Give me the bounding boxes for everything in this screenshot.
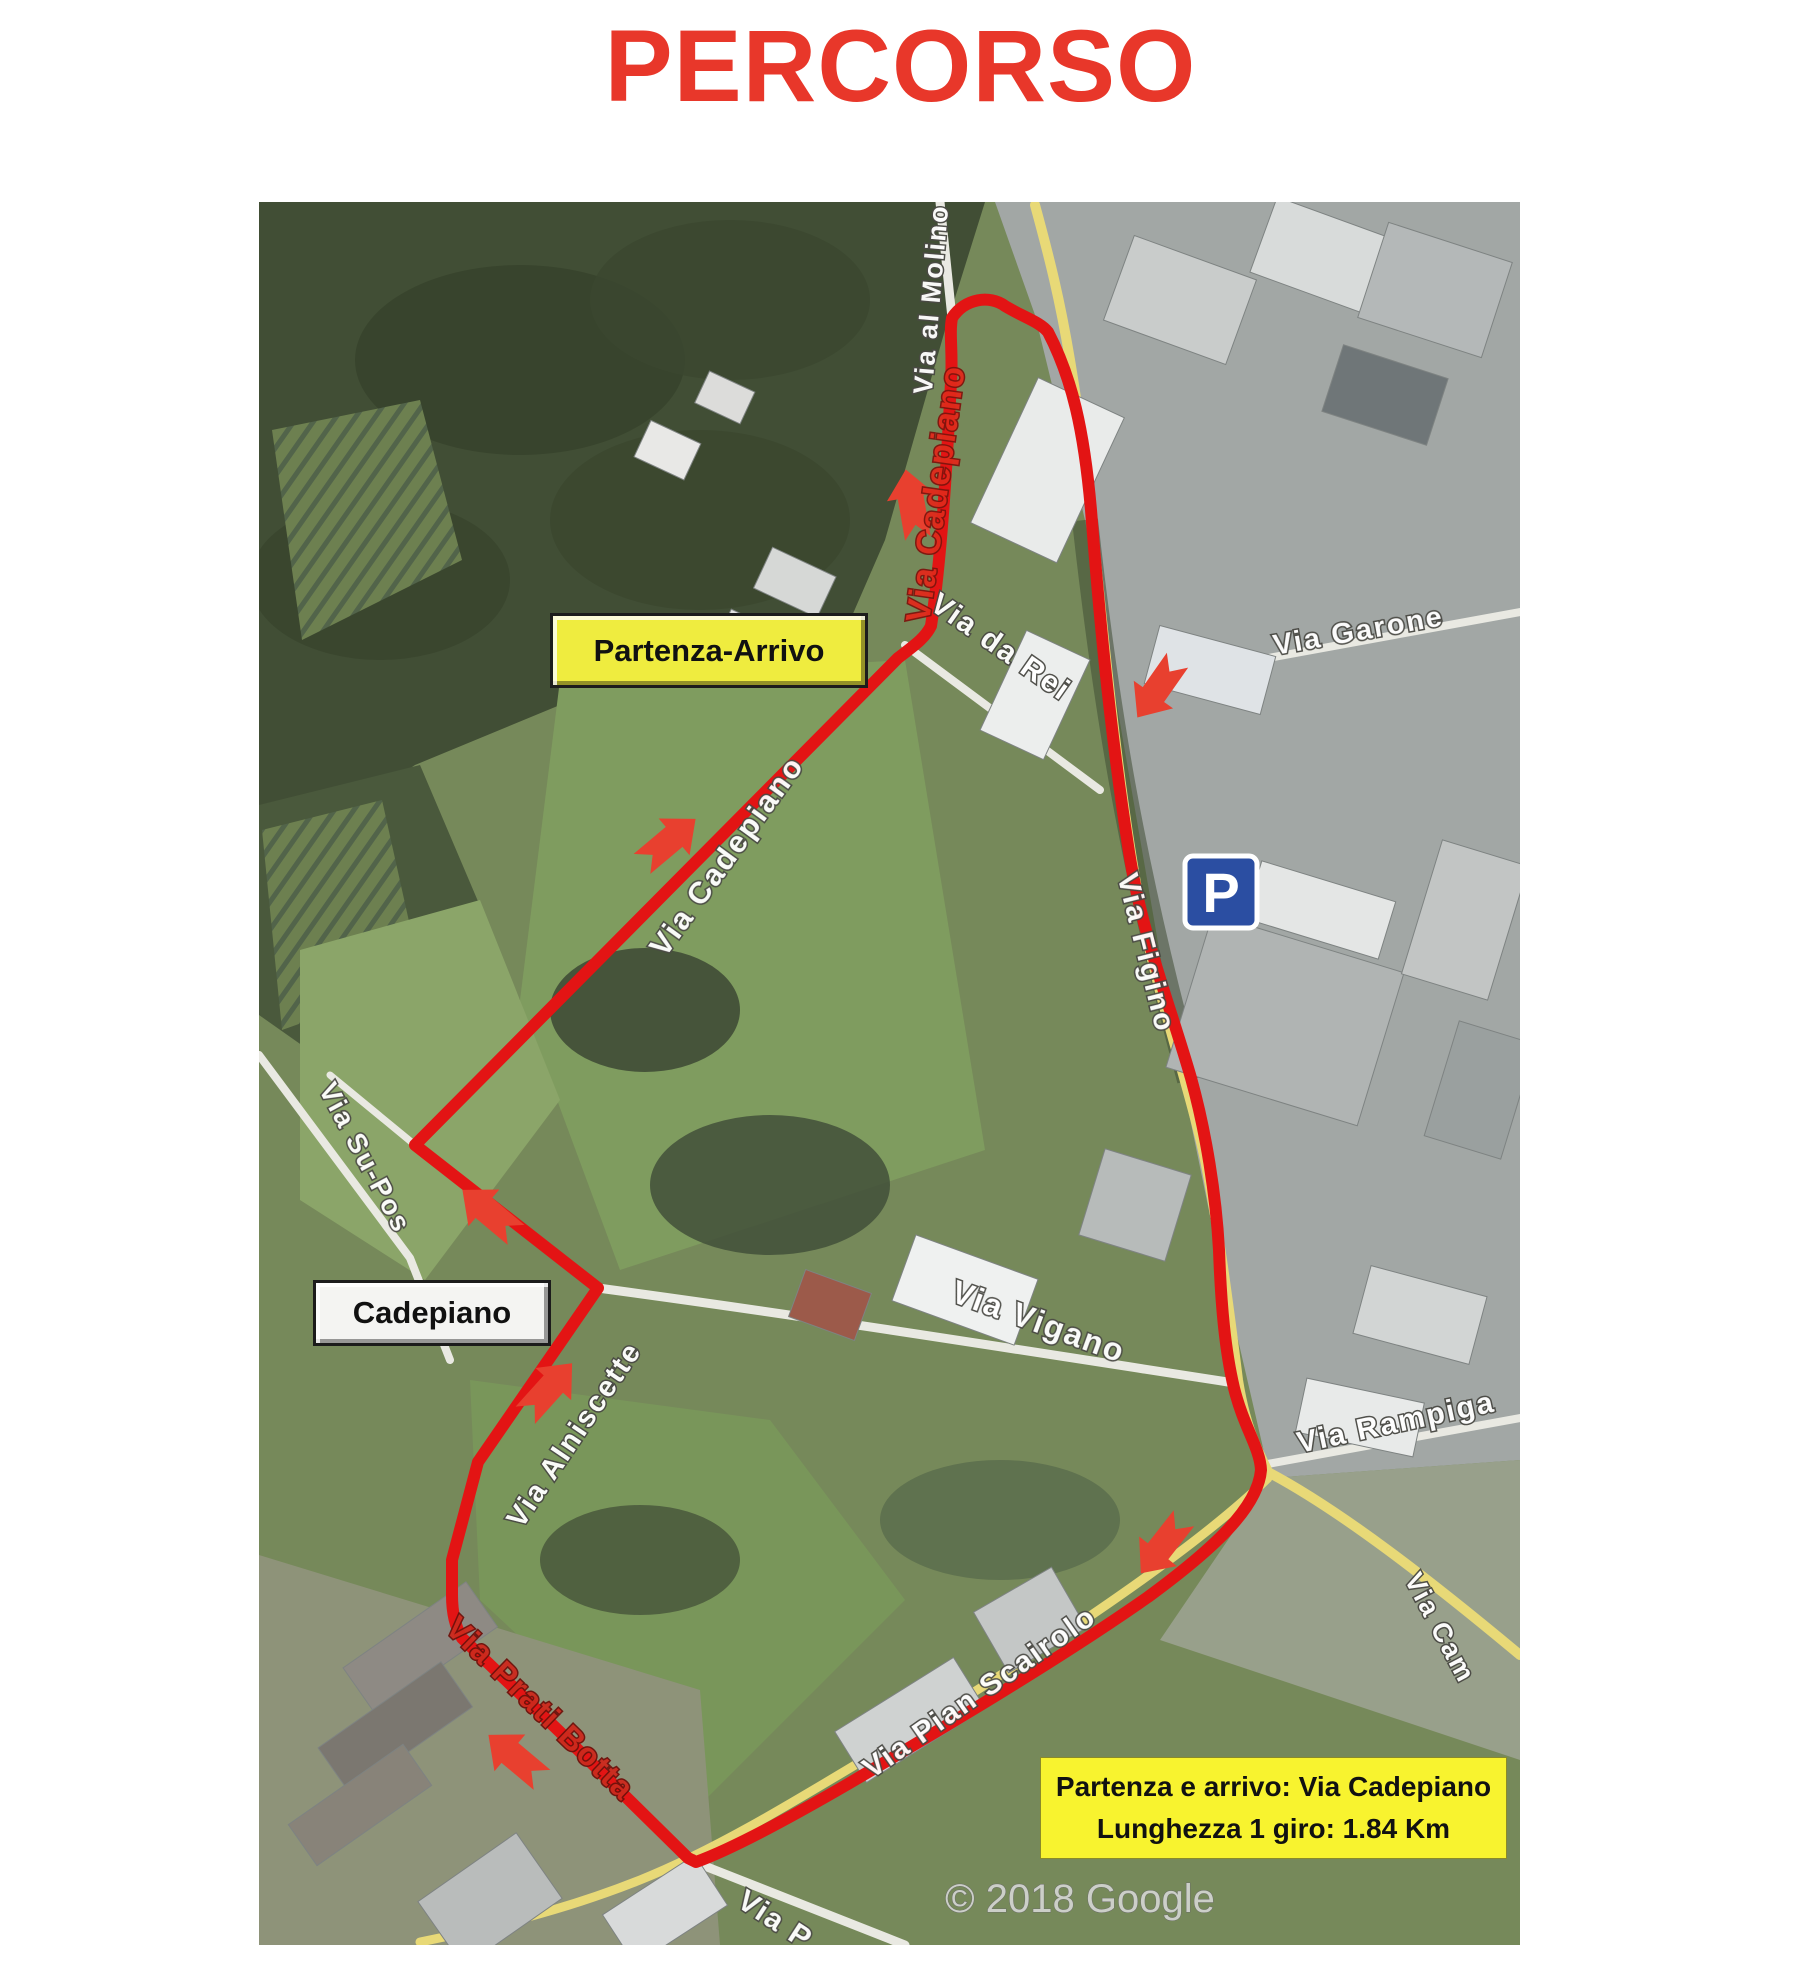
svg-text:P: P [1202, 861, 1239, 924]
route-info-box: Partenza e arrivo: Via Cadepiano Lunghez… [1040, 1757, 1507, 1859]
locality-label: Cadepiano [313, 1280, 551, 1346]
start-finish-label: Partenza-Arrivo [550, 613, 868, 688]
route-info-line2: Lunghezza 1 giro: 1.84 Km [1097, 1808, 1450, 1850]
route-info-line1: Partenza e arrivo: Via Cadepiano [1056, 1766, 1491, 1808]
parking-icon: P [1185, 856, 1257, 928]
map-attribution: © 2018 Google [945, 1877, 1215, 1921]
satellite-map: Via al Molino Via Cadepiano Via Cadepian… [259, 202, 1520, 1945]
map-container: Via al Molino Via Cadepiano Via Cadepian… [259, 202, 1520, 1945]
page-title: PERCORSO [0, 8, 1801, 125]
